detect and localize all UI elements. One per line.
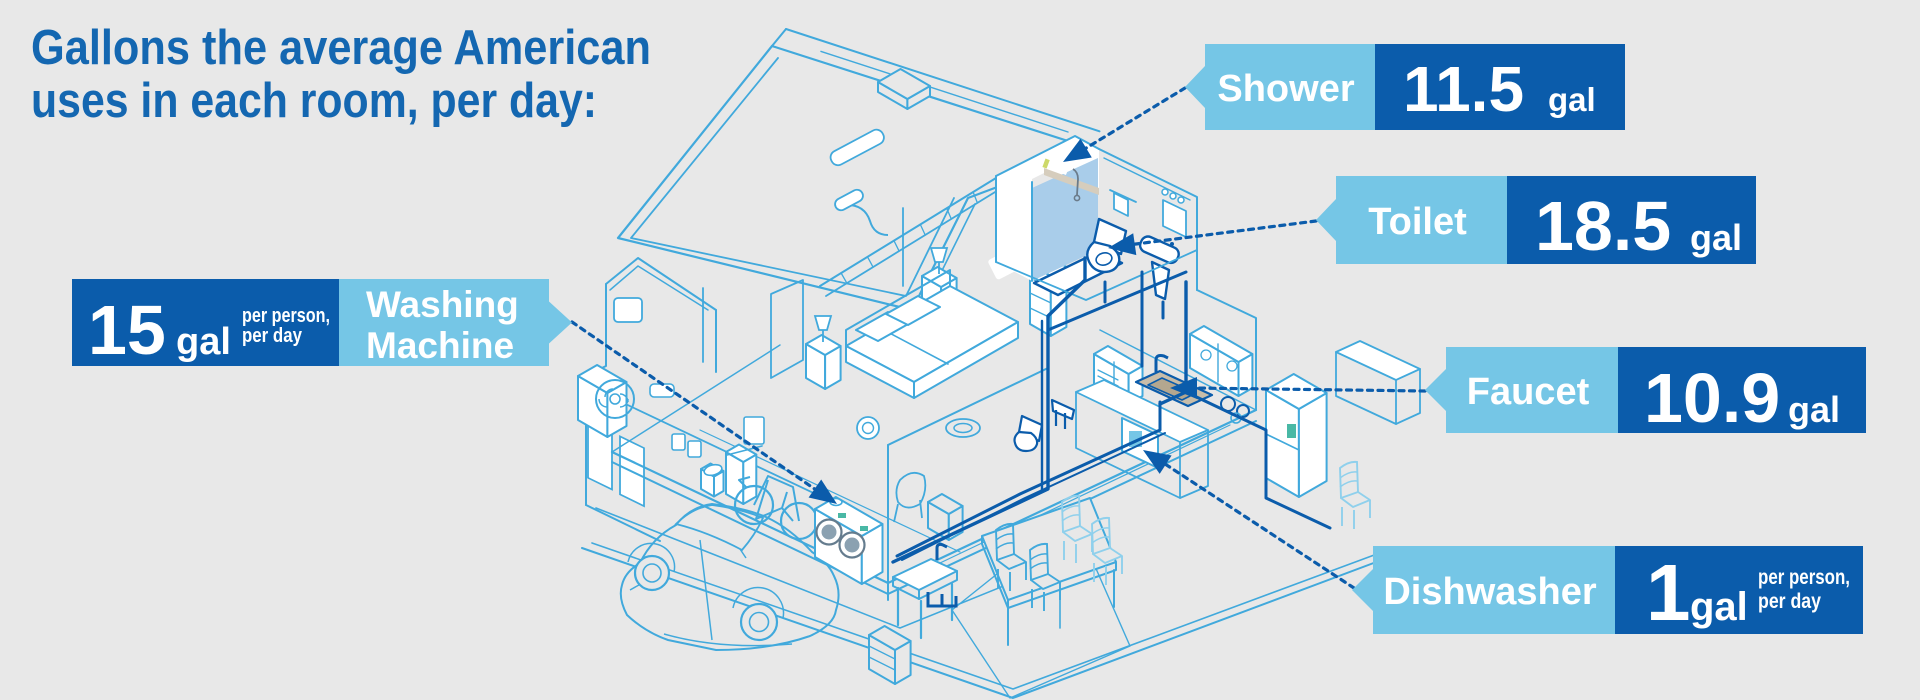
- svg-text:11.5: 11.5: [1403, 53, 1524, 125]
- svg-text:per person,: per person,: [1758, 566, 1850, 589]
- svg-text:Machine: Machine: [366, 325, 514, 366]
- svg-text:per person,: per person,: [242, 305, 330, 327]
- svg-text:gal: gal: [176, 321, 231, 363]
- svg-text:gal: gal: [1690, 217, 1742, 258]
- svg-text:per day: per day: [1758, 590, 1821, 613]
- svg-text:Gallons the average American: Gallons the average American: [31, 21, 651, 75]
- svg-text:Shower: Shower: [1217, 68, 1354, 110]
- svg-text:gal: gal: [1788, 389, 1840, 430]
- svg-text:gal: gal: [1690, 585, 1748, 629]
- svg-text:Washing: Washing: [366, 284, 519, 325]
- svg-text:1: 1: [1646, 548, 1691, 637]
- svg-text:Faucet: Faucet: [1467, 371, 1590, 413]
- svg-text:Dishwasher: Dishwasher: [1383, 571, 1597, 613]
- svg-text:Toilet: Toilet: [1368, 201, 1467, 243]
- svg-text:15: 15: [88, 291, 166, 369]
- svg-text:uses in each room, per day:: uses in each room, per day:: [31, 74, 597, 128]
- svg-text:gal: gal: [1548, 81, 1596, 118]
- svg-text:per day: per day: [242, 325, 303, 347]
- svg-text:10.9: 10.9: [1644, 359, 1780, 437]
- svg-text:18.5: 18.5: [1535, 187, 1671, 265]
